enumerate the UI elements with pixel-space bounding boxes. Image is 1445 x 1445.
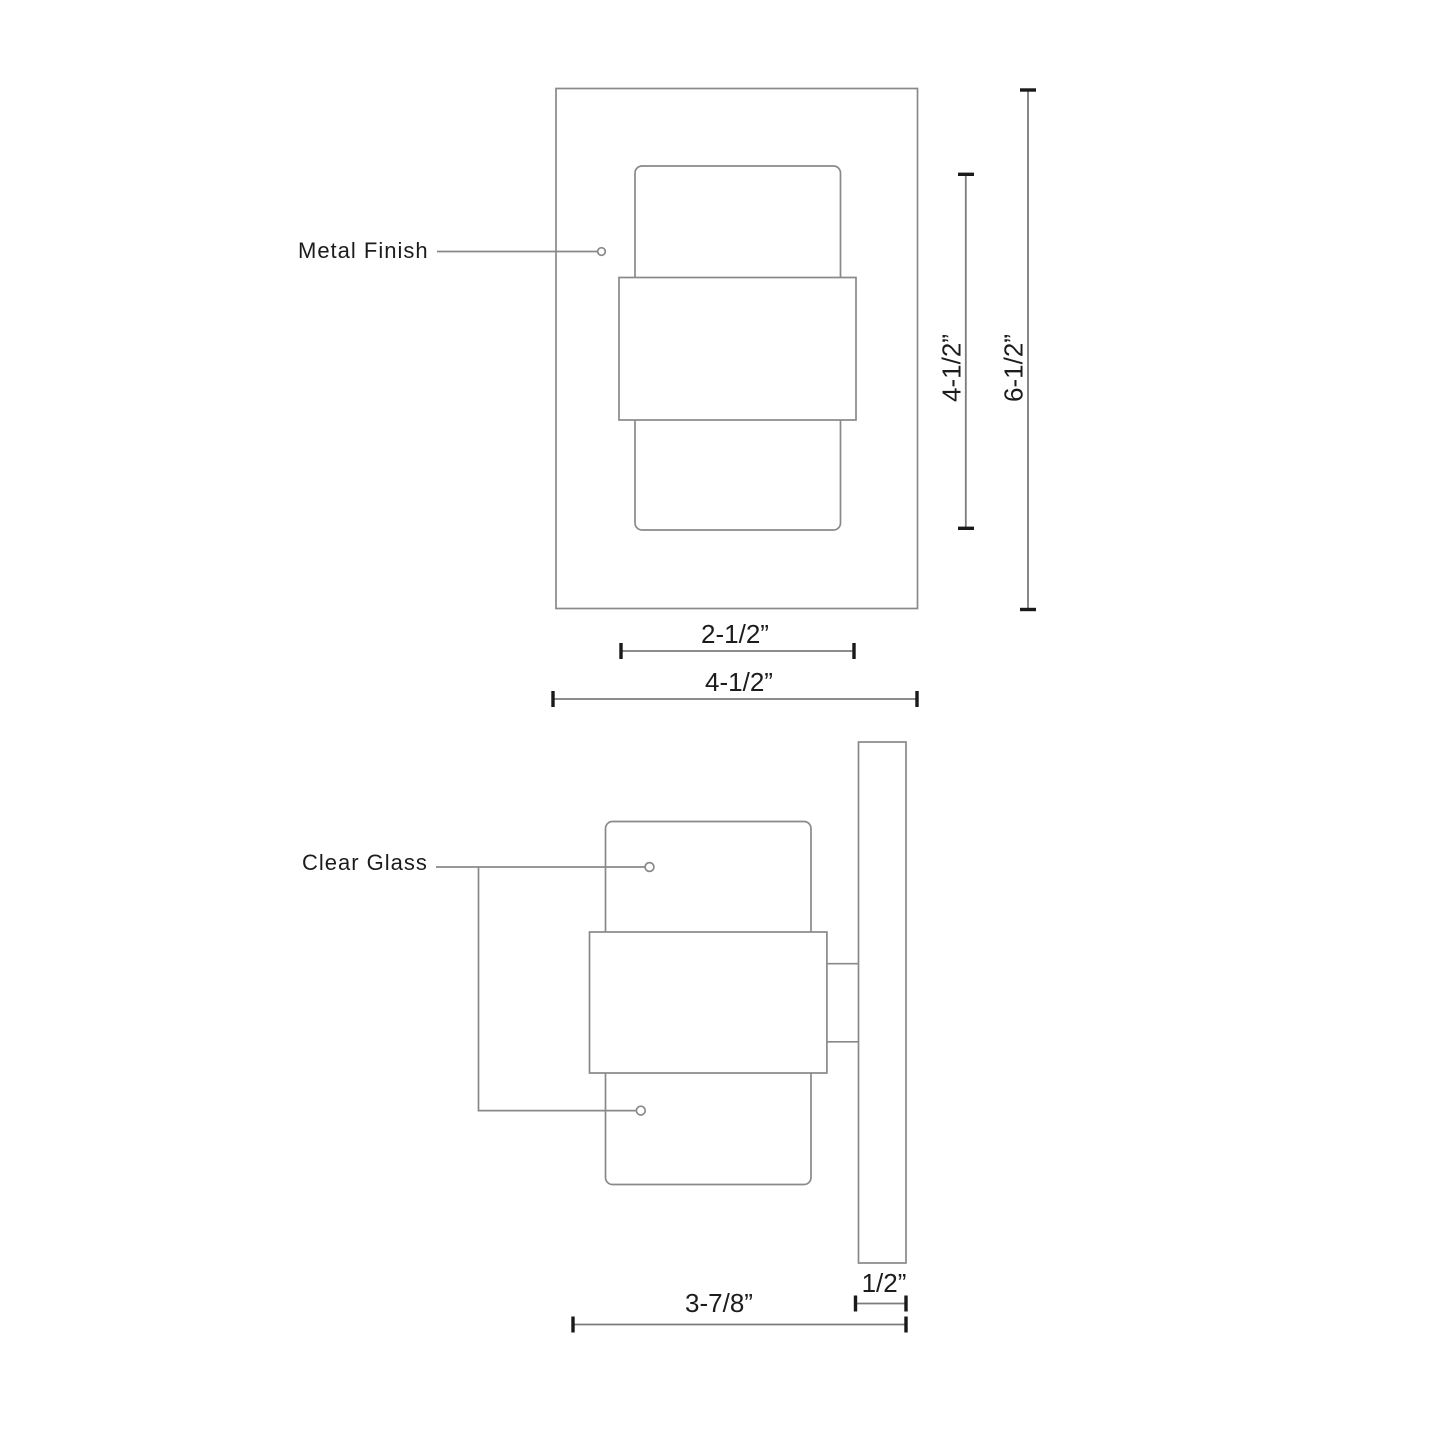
svg-text:2-1/2”: 2-1/2”	[701, 619, 769, 649]
svg-text:Metal Finish: Metal Finish	[298, 238, 429, 263]
svg-text:6-1/2”: 6-1/2”	[999, 334, 1029, 402]
svg-text:Clear Glass: Clear Glass	[302, 850, 428, 875]
svg-text:1/2”: 1/2”	[862, 1268, 907, 1298]
svg-text:4-1/2”: 4-1/2”	[937, 334, 967, 402]
svg-text:3-7/8”: 3-7/8”	[685, 1288, 753, 1318]
svg-text:4-1/2”: 4-1/2”	[705, 667, 773, 697]
